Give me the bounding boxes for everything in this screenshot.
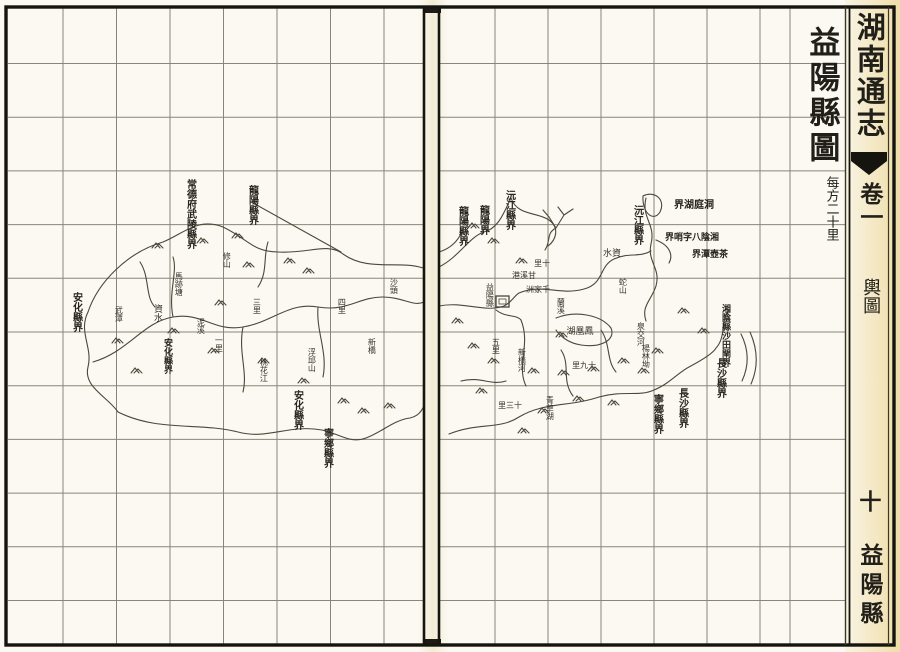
map-label: 界湖庭洞: [674, 200, 714, 211]
map-label: 湖凰鳳: [566, 328, 593, 338]
map-label: 修山: [222, 252, 231, 268]
map-label: 里三十: [498, 402, 522, 411]
map-label: 沅江縣界: [504, 190, 515, 230]
map-label: 龍陽縣界: [457, 206, 468, 246]
map-label: 四里: [337, 298, 346, 314]
page-number: 十: [856, 490, 881, 512]
chapter-label: 卷一: [856, 182, 882, 228]
book-title: 湖南通志: [853, 12, 885, 140]
map-label: 沙頭: [389, 278, 398, 294]
map-title: 益陽縣圖: [804, 26, 839, 166]
map-label: 馬跡塘: [174, 272, 183, 296]
map-label: 資水: [151, 304, 161, 322]
map-label: 里九十: [572, 362, 596, 371]
map-label: 港溪甘: [512, 272, 536, 281]
map-label: 青草湖: [545, 396, 554, 420]
map-label: 五里: [491, 338, 500, 354]
map-label: 一里: [214, 336, 223, 352]
map-label: 三里: [252, 298, 261, 314]
map-label: 界哨字八陰湘: [665, 234, 719, 244]
map-label: 武潭: [114, 306, 123, 322]
frame-lines: [0, 0, 900, 652]
map-label: 安化縣界: [161, 338, 171, 374]
section-label: 輿圖: [860, 278, 880, 314]
map-label: 寧鄉縣界: [322, 428, 333, 468]
map-label: 界潭壺茶: [692, 251, 728, 261]
map-label: 湘陰縣沙田閘界: [719, 304, 729, 360]
map-label: 泉交河: [636, 322, 645, 346]
map-label: 長沙縣界: [677, 388, 688, 428]
map-label: 常德府武陵縣界: [185, 179, 196, 237]
map-label: 龍陽界: [478, 205, 489, 235]
map-label: 安化縣界: [292, 390, 303, 430]
map-label: 寧鄉縣界: [652, 394, 663, 434]
map-label: 桃花江: [259, 358, 268, 382]
map-label: 水資: [603, 250, 621, 260]
map-scale-note: 每方二十里: [823, 176, 838, 228]
map-label: 蘭溪: [556, 298, 565, 314]
map-label: 里十: [534, 260, 550, 269]
page-county-label: 益陽縣: [856, 543, 882, 630]
map-label: 長沙縣界: [715, 358, 726, 398]
map-label: 泥溪: [196, 318, 205, 334]
map-label: 浮邱山: [307, 348, 316, 372]
map-label: 蛇山: [618, 278, 627, 294]
map-label: 新橋河: [517, 348, 526, 372]
map-label: 洲家千: [526, 286, 550, 295]
gazetteer-sheet: 常德府武陵縣界龍陽縣界安化縣界資水安化縣界安化縣界寧鄉縣界馬跡塘武潭修山泥溪一里…: [0, 0, 900, 652]
map-label: 楊林坳: [641, 344, 650, 368]
map-label: 益陽縣: [485, 283, 494, 307]
map-label: 沅江縣界: [632, 205, 643, 245]
map-label: 安化縣界: [71, 292, 82, 332]
map-label: 新橋: [367, 338, 376, 354]
map-label: 龍陽縣界: [247, 185, 258, 217]
fishtail-mark: [851, 152, 887, 175]
